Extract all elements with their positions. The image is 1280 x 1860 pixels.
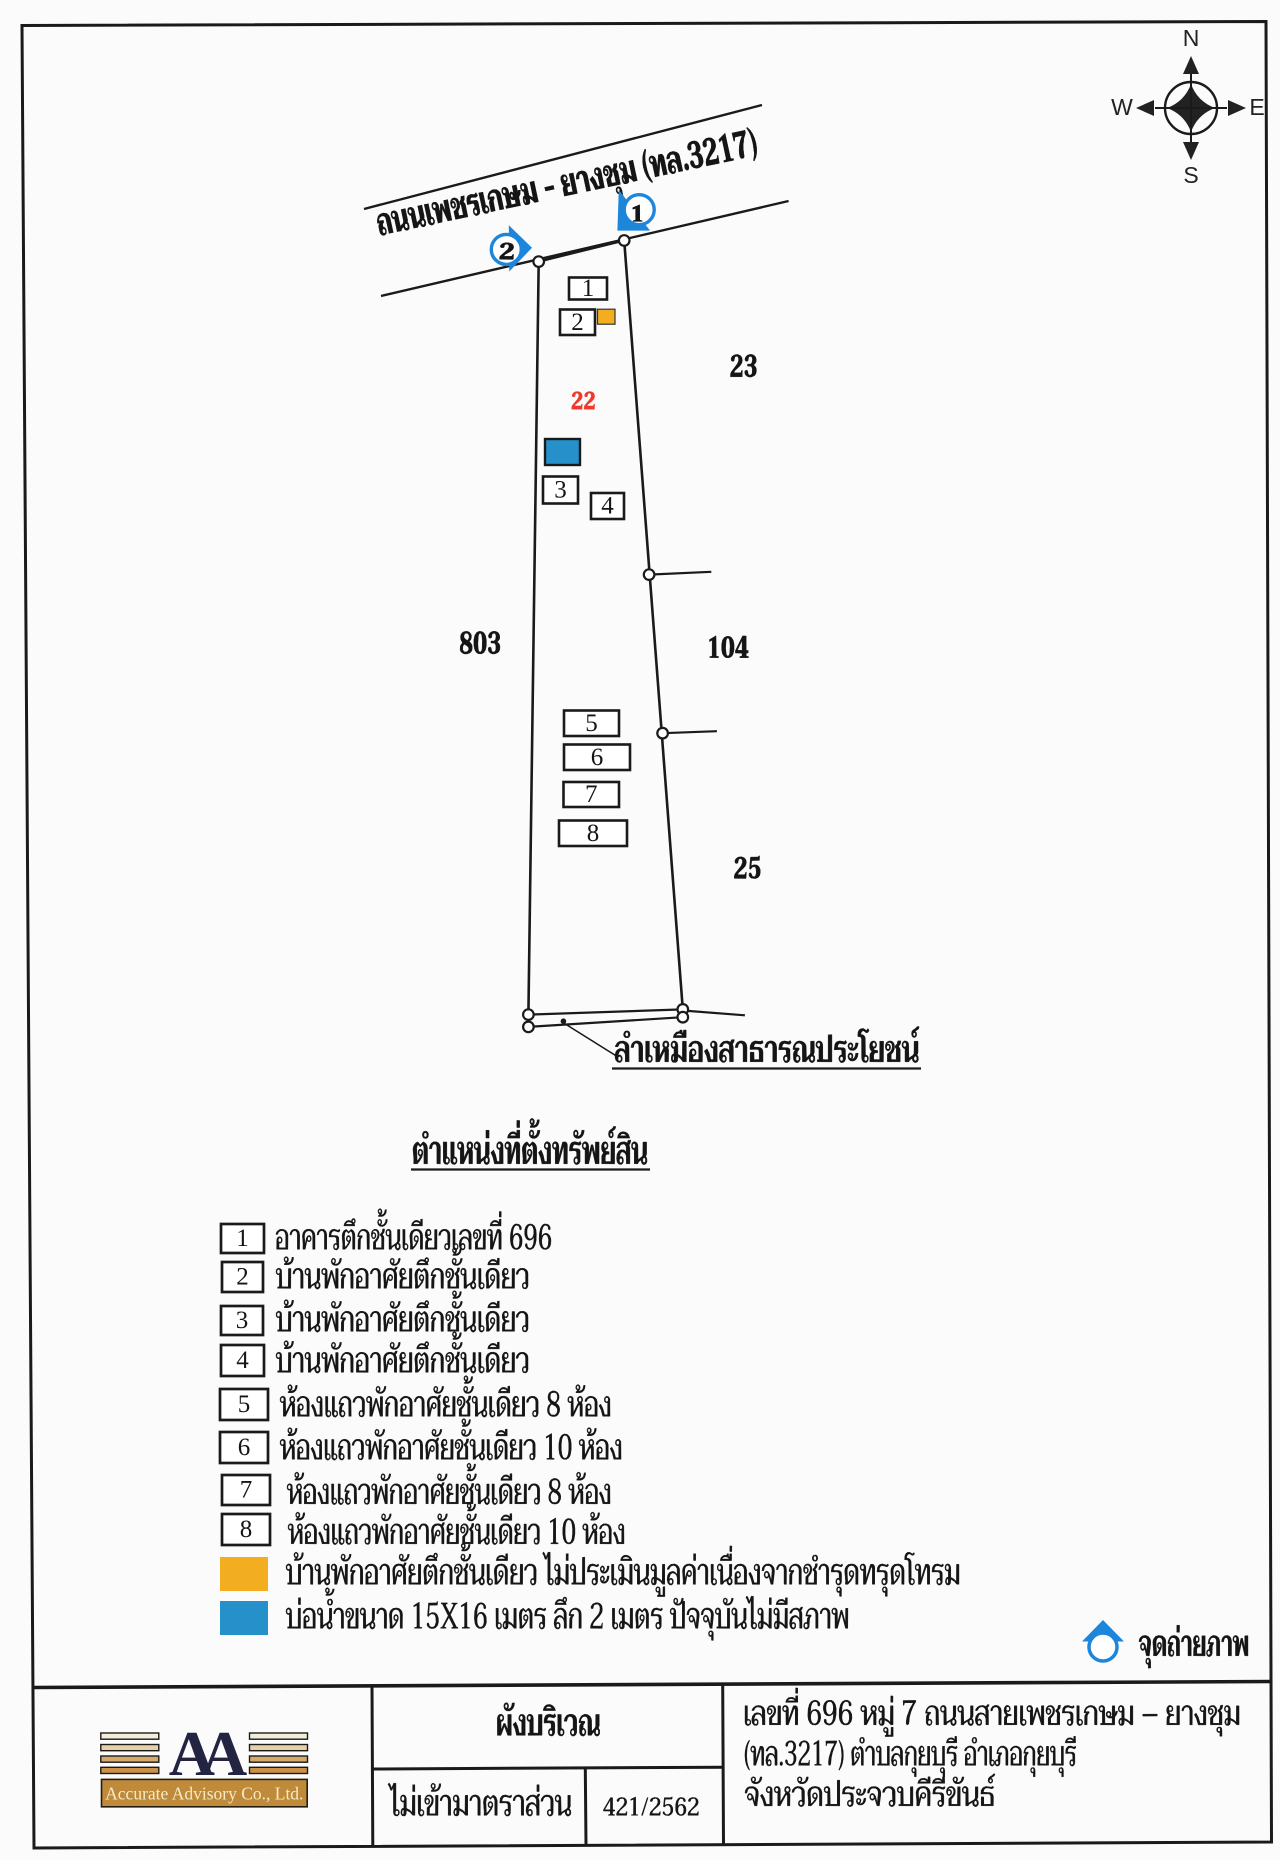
svg-text:2: 2 <box>236 1264 249 1291</box>
svg-text:7: 7 <box>585 781 598 808</box>
svg-text:1: 1 <box>236 1225 249 1252</box>
svg-text:5: 5 <box>238 1391 251 1418</box>
svg-text:W: W <box>1111 94 1133 120</box>
svg-text:8: 8 <box>240 1516 253 1543</box>
svg-text:E: E <box>1249 94 1264 120</box>
svg-text:5: 5 <box>585 710 598 737</box>
svg-text:2: 2 <box>571 309 584 336</box>
svg-text:4: 4 <box>236 1347 249 1374</box>
svg-text:1: 1 <box>582 275 595 302</box>
svg-text:N: N <box>1183 25 1200 51</box>
svg-text:6: 6 <box>238 1434 251 1461</box>
svg-text:3: 3 <box>236 1307 249 1334</box>
svg-text:4: 4 <box>601 493 614 520</box>
svg-text:Accurate Advisory Co., Ltd.: Accurate Advisory Co., Ltd. <box>105 1784 303 1804</box>
svg-text:6: 6 <box>591 744 604 771</box>
svg-text:S: S <box>1183 162 1198 188</box>
svg-text:3: 3 <box>554 477 567 504</box>
svg-text:7: 7 <box>240 1477 253 1504</box>
svg-text:8: 8 <box>587 820 600 847</box>
